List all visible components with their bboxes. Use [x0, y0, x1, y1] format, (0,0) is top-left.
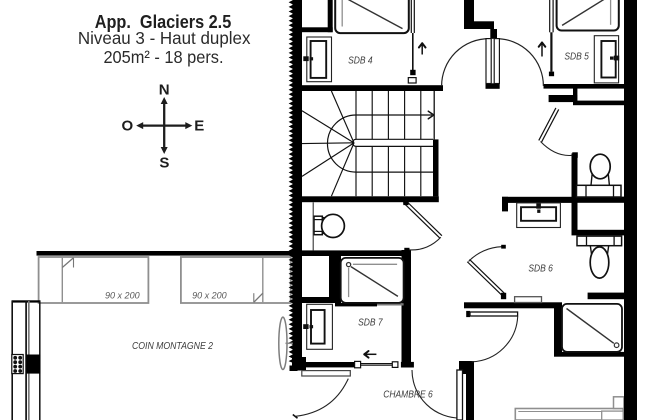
svg-text:O: O	[121, 118, 133, 135]
svg-text:E: E	[194, 118, 204, 135]
svg-text:Niveau 3 - Haut duplex: Niveau 3 - Haut duplex	[78, 28, 251, 48]
svg-text:SDB 5: SDB 5	[564, 51, 589, 62]
svg-text:90 x 200: 90 x 200	[192, 291, 227, 301]
svg-text:COIN MONTAGNE 2: COIN MONTAGNE 2	[132, 341, 214, 352]
svg-text:SDB 6: SDB 6	[528, 263, 553, 274]
svg-text:N: N	[159, 82, 170, 99]
svg-text:90 x 200: 90 x 200	[105, 291, 140, 301]
svg-text:205m² - 18 pers.: 205m² - 18 pers.	[103, 47, 223, 67]
svg-text:SDB 7: SDB 7	[358, 317, 383, 328]
svg-text:CHAMBRE 6: CHAMBRE 6	[383, 390, 433, 401]
svg-text:SDB 4: SDB 4	[348, 55, 373, 66]
svg-text:S: S	[159, 154, 169, 171]
